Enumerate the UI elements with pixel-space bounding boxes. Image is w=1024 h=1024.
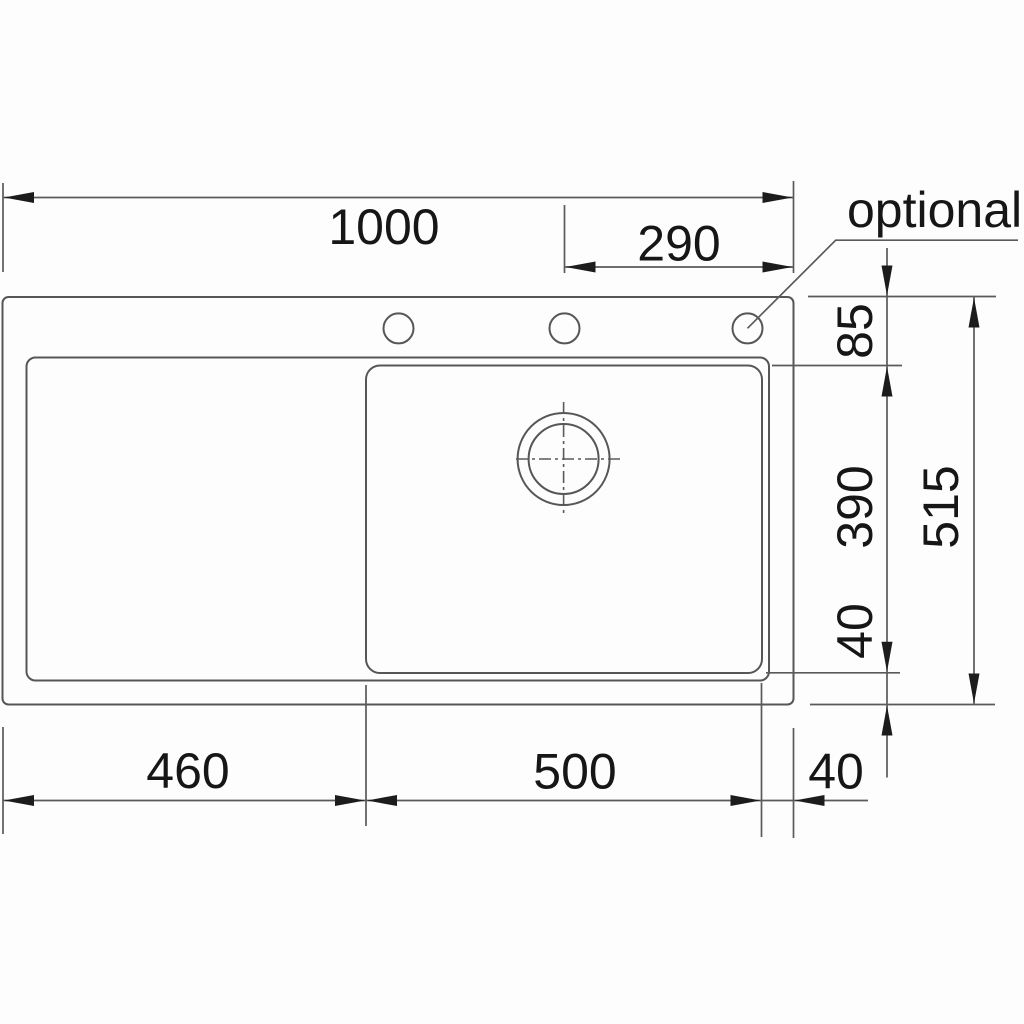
svg-text:85: 85 bbox=[827, 303, 883, 359]
svg-text:40: 40 bbox=[827, 603, 883, 659]
svg-text:515: 515 bbox=[913, 465, 969, 548]
svg-text:290: 290 bbox=[637, 216, 720, 272]
svg-text:1000: 1000 bbox=[328, 199, 439, 255]
svg-text:optional: optional bbox=[847, 182, 1022, 238]
svg-text:460: 460 bbox=[146, 743, 229, 799]
svg-text:390: 390 bbox=[827, 465, 883, 548]
svg-text:500: 500 bbox=[533, 744, 616, 800]
svg-text:40: 40 bbox=[808, 744, 864, 800]
